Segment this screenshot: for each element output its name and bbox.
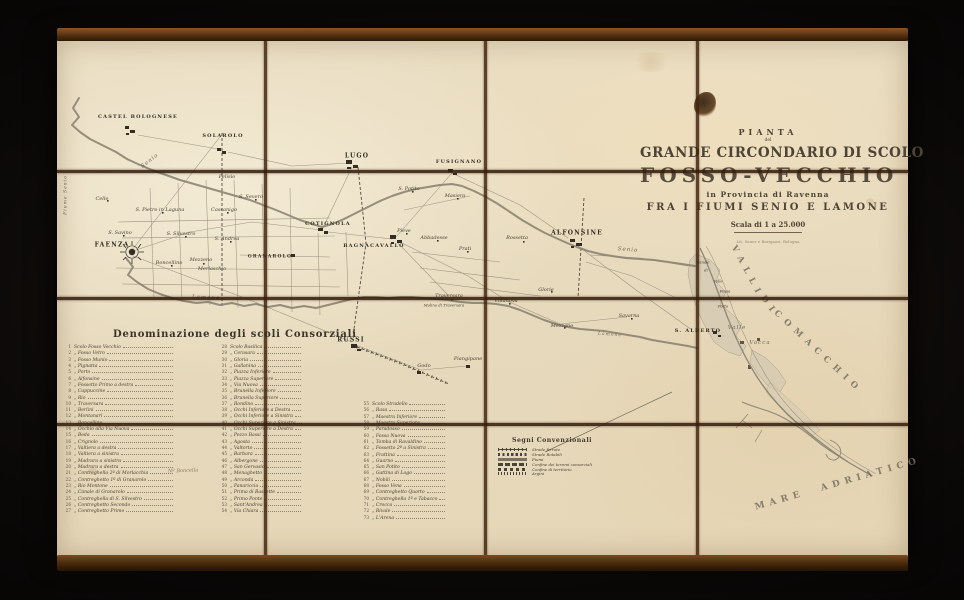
dotted-leader <box>295 415 301 417</box>
scoli-name: „ Arconda <box>230 478 253 483</box>
dotted-leader <box>419 416 445 418</box>
scoli-number: 6 <box>62 376 71 381</box>
legend-symbol <box>498 458 527 461</box>
legend-symbol <box>498 472 527 475</box>
panel-seam-horizontal-2 <box>57 297 908 300</box>
scoli-number: 34 <box>218 382 227 387</box>
dotted-leader <box>292 409 301 411</box>
scoli-name: „ Rivale <box>372 509 390 514</box>
legend-symbol <box>498 463 527 466</box>
scoli-name: „ Gattina di Lago <box>372 471 412 476</box>
scoli-number: 66 <box>360 470 369 475</box>
scoli-name: „ Tomba di Ravaldino <box>372 440 422 445</box>
scoli-column-3: 55 Scolo Stradello 56 „ Rasa 57 „ Maestr… <box>360 401 446 521</box>
scoli-row: 38 „ Occhi Inferiore a Destra <box>218 407 302 413</box>
dotted-leader <box>102 378 173 380</box>
scoli-name: „ Occhi Inferiore a Destra <box>230 408 290 413</box>
scoli-name: „ Contreghetto Primo <box>74 509 124 514</box>
scoli-name: „ Gloria <box>230 358 248 363</box>
scoli-number: 31 <box>218 363 227 368</box>
scoli-name: „ Madrara a sinistra <box>74 459 121 464</box>
legend-title: Segni Convenzionali <box>512 437 668 444</box>
scoli-number: 44 <box>218 445 227 450</box>
scoli-number: 23 <box>62 483 71 488</box>
dotted-leader <box>132 504 173 506</box>
scoli-number: 17 <box>62 445 71 450</box>
scoli-number: 67 <box>360 477 369 482</box>
scoli-number: 12 <box>62 413 71 418</box>
scoli-number: 3 <box>62 357 71 362</box>
scoli-number: 72 <box>360 508 369 513</box>
scoli-name: „ Contreghetto Secondo <box>74 503 130 508</box>
dotted-leader <box>104 415 173 417</box>
dotted-leader <box>392 510 445 512</box>
dotted-leader <box>295 428 301 430</box>
dotted-leader <box>264 346 301 348</box>
scoli-number: 24 <box>62 489 71 494</box>
scoli-name: „ Fosso Vena <box>372 484 402 489</box>
scoli-number: 19 <box>62 458 71 463</box>
scoli-number: 59 <box>360 426 369 431</box>
scoli-number: 63 <box>360 452 369 457</box>
scoli-number: 45 <box>218 451 227 456</box>
scoli-name: „ Fosso Vetro <box>74 351 105 356</box>
scoli-name: Scolo Stradello <box>372 402 407 407</box>
scoli-name: „ Maestra Inferiore <box>372 415 417 420</box>
dotted-leader <box>107 390 173 392</box>
scoli-number: 1 <box>62 344 71 349</box>
dotted-leader <box>264 498 301 500</box>
scoli-name: Scolo Fosso Vecchio <box>74 345 121 350</box>
scoli-number: 10 <box>62 401 71 406</box>
scoli-number: 55 <box>360 401 369 406</box>
scoli-name: „ Valtorto <box>230 446 252 451</box>
scoli-name: „ Fossetto Primo a destra <box>74 383 133 388</box>
scoli-name: „ Barbara <box>230 452 253 457</box>
scoli-number: 5 <box>62 369 71 374</box>
scoli-number: 49 <box>218 477 227 482</box>
dotted-leader <box>278 390 301 392</box>
scoli-number: 18 <box>62 451 71 456</box>
dotted-leader <box>263 434 301 436</box>
scoli-name: „ Cerasara <box>230 351 255 356</box>
dotted-leader <box>144 498 173 500</box>
scoli-name: „ Traversara <box>74 402 103 407</box>
scoli-number: 56 <box>360 407 369 412</box>
scoli-row: 41 „ Occhi Superiore a Destra <box>218 426 302 432</box>
scoli-name: „ Primo Ponte <box>230 497 262 502</box>
scoli-number: 43 <box>218 439 227 444</box>
photo-of-mounted-map: PIANTA del GRANDE CIRCONDARIO DI SCOLO F… <box>0 0 964 600</box>
dotted-leader <box>427 491 445 493</box>
dotted-leader <box>254 447 301 449</box>
scoli-name: „ Contreghetto 1º di Granarolo <box>74 478 146 483</box>
scoli-number: 26 <box>62 502 71 507</box>
scoli-name: „ Valtiera a sinistra <box>74 452 119 457</box>
panel-seam-horizontal-1 <box>57 170 908 173</box>
dotted-leader <box>396 517 445 519</box>
legend-rows: Strade ferrate Strade Rotabili Fiumi Con… <box>498 447 668 476</box>
scoli-number: 9 <box>62 395 71 400</box>
dotted-leader <box>123 346 173 348</box>
scoli-number: 64 <box>360 458 369 463</box>
scoli-name: „ Berlini <box>74 408 94 413</box>
dotted-leader <box>408 435 445 437</box>
title-rule <box>734 232 802 233</box>
scoli-name: „ Rio <box>74 396 86 401</box>
dotted-leader <box>107 352 173 354</box>
scoli-name: „ Contreghella 1ª e Tabacco <box>372 497 437 502</box>
scoli-number: 14 <box>62 426 71 431</box>
scoli-name: „ Canale di Granarolo <box>74 490 125 495</box>
scoli-number: 2 <box>62 350 71 355</box>
scoli-name: „ Paradosso <box>372 427 400 432</box>
scoli-number: 42 <box>218 432 227 437</box>
title-scale: Scala di 1 a 25.000 <box>640 220 896 229</box>
scoli-name: „ Rasa <box>372 408 387 413</box>
scoli-number: 65 <box>360 464 369 469</box>
legend-row: Argini <box>498 471 668 476</box>
scoli-name: „ Agosta <box>230 440 250 445</box>
dotted-leader <box>424 441 445 443</box>
scoli-name: „ Occhi Superiore a Destra <box>230 427 293 432</box>
scoli-name: „ Albergone <box>230 459 258 464</box>
dotted-leader <box>127 491 173 493</box>
dotted-leader <box>252 441 301 443</box>
dotted-leader <box>402 428 445 430</box>
scoli-name: „ Panariccia <box>230 484 258 489</box>
wood-frame-bottom <box>57 555 908 571</box>
panel-seam-horizontal-3 <box>57 423 908 426</box>
dotted-leader <box>121 453 173 455</box>
scoli-name: „ Prima di Bassette <box>230 490 275 495</box>
scoli-name: „ Occhio alla Via Nuova <box>74 427 129 432</box>
scoli-name: „ Montanari <box>74 414 102 419</box>
dotted-leader <box>255 403 301 405</box>
scoli-number: 11 <box>62 407 71 412</box>
scoli-number: 53 <box>218 502 227 507</box>
dotted-leader <box>99 365 173 367</box>
scoli-name: „ Fosso Munio <box>74 358 107 363</box>
dotted-leader <box>109 359 173 361</box>
wood-frame-top <box>57 28 908 41</box>
scoli-name: „ Rondino <box>230 402 253 407</box>
scoli-number: 35 <box>218 388 227 393</box>
title-block: PIANTA del GRANDE CIRCONDARIO DI SCOLO F… <box>640 127 896 244</box>
scoli-index-heading: Denominazione degli scoli Consorziali <box>113 329 357 340</box>
dotted-leader <box>126 510 173 512</box>
scoli-name: „ Fossetto 2º a Sinistra <box>372 446 426 451</box>
dotted-leader <box>404 485 445 487</box>
scoli-name: „ Brunella Inferiore <box>230 389 276 394</box>
dotted-leader <box>428 447 445 449</box>
title-del: del <box>640 138 896 143</box>
scoli-name: „ Madrara a destra <box>74 465 119 470</box>
scoli-number: 25 <box>62 496 71 501</box>
scoli-number: 57 <box>360 414 369 419</box>
scoli-name: „ Beda <box>74 433 90 438</box>
scoli-number: 37 <box>218 401 227 406</box>
dotted-leader <box>264 472 301 474</box>
scoli-number: 33 <box>218 376 227 381</box>
title-fiumi: FRA I FIUMI SENIO E LAMONE <box>640 202 896 213</box>
scoli-name: „ Gallanina <box>230 364 256 369</box>
dotted-leader <box>280 397 301 399</box>
scoli-name: „ Brunella Superiore <box>230 396 278 401</box>
scoli-row: 70 „ Contreghella 1ª e Tabacco <box>360 496 446 502</box>
legend-symbol <box>498 468 527 471</box>
scoli-number: 73 <box>360 515 369 520</box>
scoli-number: 52 <box>218 496 227 501</box>
dotted-leader <box>275 378 301 380</box>
scoli-number: 69 <box>360 489 369 494</box>
scoli-number: 62 <box>360 445 369 450</box>
scoli-name: „ Rio Montone <box>74 484 108 489</box>
scoli-name: „ Alfonsine <box>74 377 100 382</box>
scoli-number: 46 <box>218 458 227 463</box>
legend-segni-convenzionali: Segni Convenzionali Strade ferrate Strad… <box>498 437 668 476</box>
legend-symbol <box>498 453 527 456</box>
scoli-name: „ Porto <box>74 370 90 375</box>
title-fosso-vecchio: FOSSO-VECCHIO <box>640 163 896 187</box>
dotted-leader <box>92 371 173 373</box>
scoli-number: 61 <box>360 439 369 444</box>
scoli-name: Scolo Basilica <box>230 345 262 350</box>
dotted-leader <box>121 466 173 468</box>
title-pianta: PIANTA <box>640 127 896 137</box>
scoli-number: 54 <box>218 508 227 513</box>
dotted-leader <box>255 453 301 455</box>
scoli-number: 38 <box>218 407 227 412</box>
scoli-name: „ Fossa Nuova <box>372 434 406 439</box>
dotted-leader <box>92 434 173 436</box>
scoli-name: „ Sant'Andrea <box>230 503 263 508</box>
dotted-leader <box>439 498 445 500</box>
dotted-leader <box>105 403 173 405</box>
dotted-leader <box>267 466 301 468</box>
scoli-number: 16 <box>62 439 71 444</box>
scoli-column-2: 28 Scolo Basilica 29 „ Cerasara 30 „ Glo… <box>218 344 302 514</box>
dotted-leader <box>392 479 445 481</box>
lithographer-imprint: Lit. Sauer e Barigazzi, Bologna <box>640 239 896 244</box>
scoli-name: „ Contreghella di S. Silvestro <box>74 497 142 502</box>
scoli-number: 30 <box>218 357 227 362</box>
dotted-leader <box>250 359 301 361</box>
scoli-name: „ Occhi Inferiore a Sinistra <box>230 414 293 419</box>
dotted-leader <box>394 504 445 506</box>
scoli-number: 4 <box>62 363 71 368</box>
scoli-row: 54 „ Via Chiara <box>218 508 302 514</box>
scoli-number: 36 <box>218 395 227 400</box>
scoli-number: 39 <box>218 413 227 418</box>
scoli-number: 41 <box>218 426 227 431</box>
dotted-leader <box>110 485 173 487</box>
dotted-leader <box>131 428 173 430</box>
dotted-leader <box>277 491 301 493</box>
scoli-name: „ Contreghella 2ª di Morlacchia <box>74 471 148 476</box>
dotted-leader <box>123 460 173 462</box>
scoli-number: 28 <box>218 344 227 349</box>
dotted-leader <box>96 409 174 411</box>
scoli-number: 71 <box>360 502 369 507</box>
scoli-name: „ L'Arena <box>372 516 394 521</box>
legend-label: Argini <box>532 471 544 476</box>
scoli-name: „ Valtiera a destra <box>74 446 116 451</box>
dotted-leader <box>397 454 445 456</box>
dotted-leader <box>255 479 301 481</box>
scoli-number: 29 <box>218 350 227 355</box>
dotted-leader <box>273 371 301 373</box>
scoli-number: 70 <box>360 496 369 501</box>
scoli-name: „ Frattina <box>372 453 395 458</box>
scoli-number: 50 <box>218 483 227 488</box>
dotted-leader <box>100 441 173 443</box>
scoli-name: „ San Gervasio <box>230 465 265 470</box>
scoli-row: 39 „ Occhi Inferiore a Sinistra <box>218 413 302 419</box>
scoli-row: 73 „ L'Arena <box>360 515 446 521</box>
dotted-leader <box>265 504 301 506</box>
scoli-number: 8 <box>62 388 71 393</box>
scoli-name: „ San Potito <box>372 465 400 470</box>
scoli-number: 48 <box>218 470 227 475</box>
scoli-name: „ Menaghetto <box>230 471 262 476</box>
dotted-leader <box>389 409 445 411</box>
scoli-name: „ Via Chiara <box>230 509 258 514</box>
scoli-number: 47 <box>218 464 227 469</box>
scoli-name: „ Piazza Superiore <box>230 377 273 382</box>
dotted-leader <box>409 403 445 405</box>
scoli-name: „ Pignatta <box>74 364 97 369</box>
scoli-name: „ Cappuccine <box>74 389 105 394</box>
scoli-column-1: 1 Scolo Fosso Vecchio 2 „ Fosso Vetro 3 … <box>62 344 174 514</box>
title-provincia: in Provincia di Ravenna <box>640 190 896 199</box>
scoli-number: 15 <box>62 432 71 437</box>
scoli-number: 20 <box>62 464 71 469</box>
scoli-number: 22 <box>62 477 71 482</box>
scoli-number: 27 <box>62 508 71 513</box>
dotted-leader <box>402 466 445 468</box>
scoli-name: „ Crignolo <box>74 440 98 445</box>
scoli-name: „ Pozzo Bassi <box>230 433 261 438</box>
scoli-name: „ Crocca <box>372 503 392 508</box>
scoli-number: 68 <box>360 483 369 488</box>
scoli-name: „ Contreghetto Quarto <box>372 490 425 495</box>
scoli-number: 7 <box>62 382 71 387</box>
dotted-leader <box>118 447 173 449</box>
dotted-leader <box>135 384 173 386</box>
dotted-leader <box>395 460 445 462</box>
title-line1: GRANDE CIRCONDARIO DI SCOLO <box>640 145 896 161</box>
dotted-leader <box>88 397 173 399</box>
scoli-name: „ Via Nuova <box>230 383 258 388</box>
handwritten-note: Nº Boncella <box>168 467 198 474</box>
scoli-name: „ Guarno <box>372 459 393 464</box>
scoli-name: „ Nobili <box>372 478 390 483</box>
scoli-number: 51 <box>218 489 227 494</box>
scoli-number: 32 <box>218 369 227 374</box>
scoli-row: 27 „ Contreghetto Primo <box>62 508 174 514</box>
dotted-leader <box>414 472 445 474</box>
scoli-number: 60 <box>360 433 369 438</box>
legend-symbol <box>498 448 527 451</box>
scoli-number: 21 <box>62 470 71 475</box>
dotted-leader <box>148 479 173 481</box>
